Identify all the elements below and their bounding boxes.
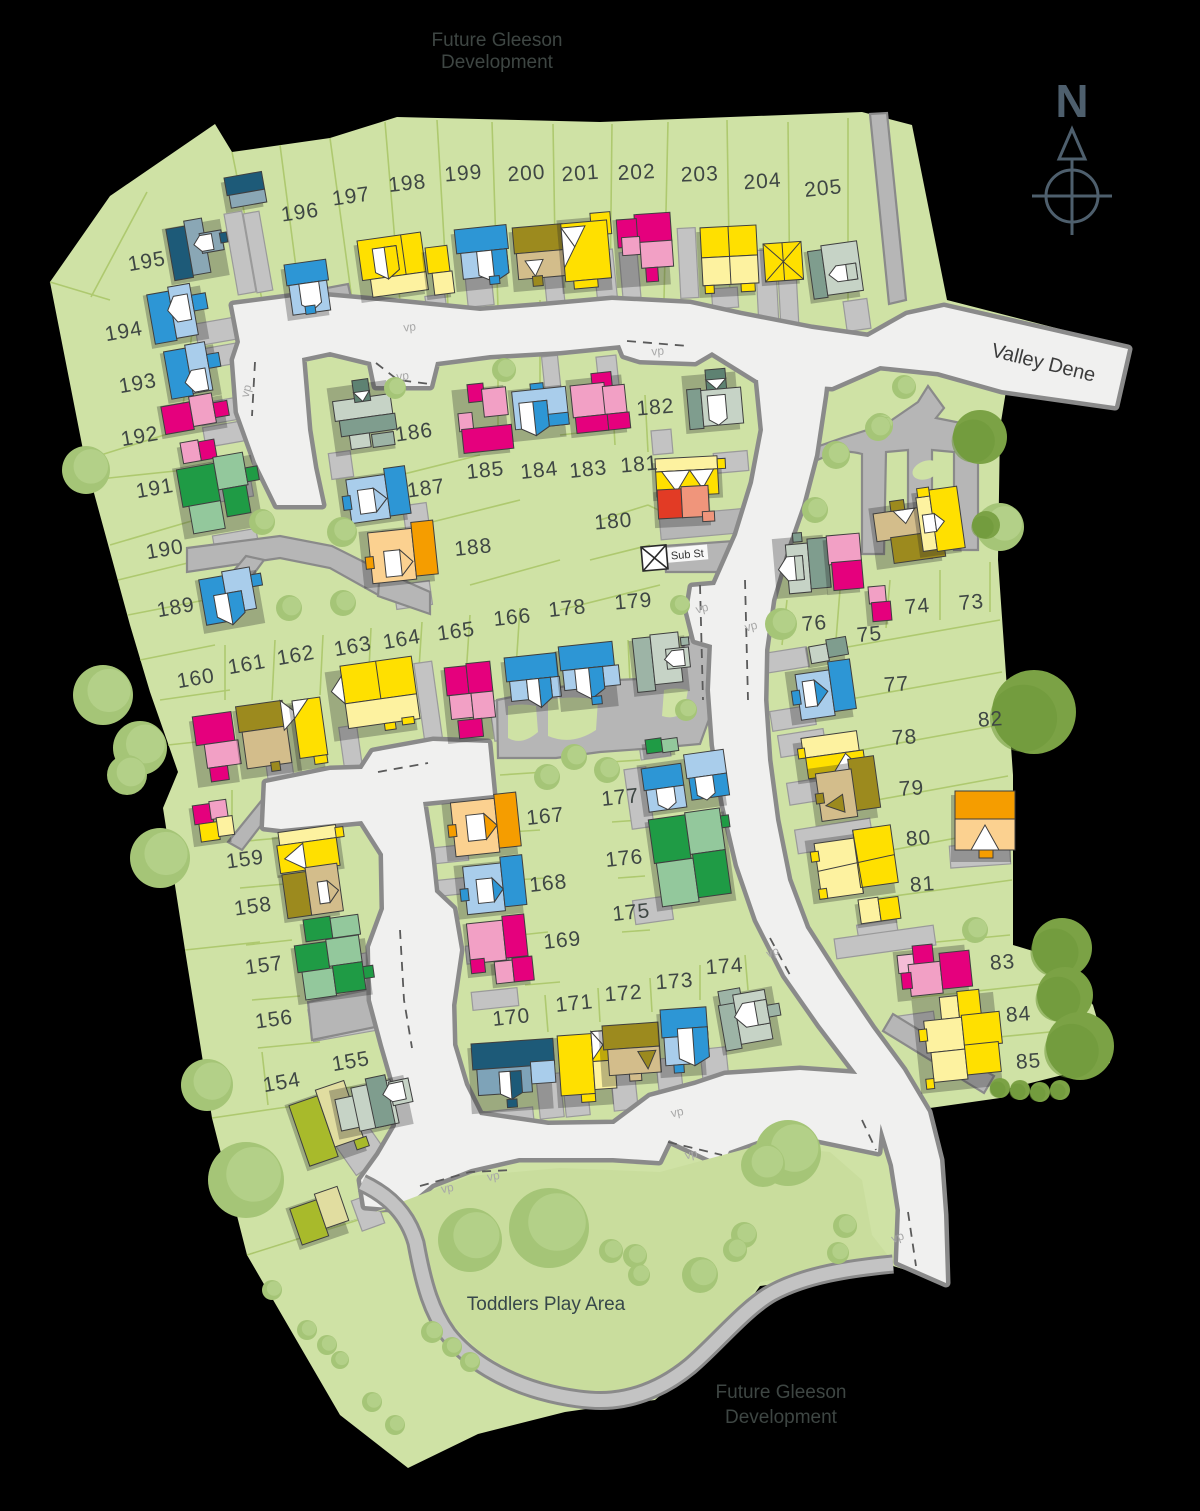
- svg-text:173: 173: [655, 969, 695, 995]
- svg-text:77: 77: [883, 672, 910, 697]
- svg-text:Development: Development: [725, 1407, 838, 1428]
- svg-text:199: 199: [443, 160, 483, 186]
- svg-text:Development: Development: [441, 52, 554, 73]
- svg-text:201: 201: [561, 161, 601, 187]
- svg-text:167: 167: [525, 803, 565, 830]
- svg-text:177: 177: [600, 784, 640, 811]
- svg-text:171: 171: [554, 990, 594, 1017]
- svg-text:76: 76: [801, 611, 828, 636]
- svg-text:85: 85: [1015, 1049, 1042, 1074]
- svg-text:84: 84: [1005, 1002, 1032, 1027]
- svg-text:170: 170: [491, 1004, 531, 1031]
- svg-text:74: 74: [904, 594, 931, 619]
- svg-text:Future Gleeson: Future Gleeson: [432, 30, 563, 51]
- svg-text:178: 178: [547, 595, 587, 622]
- svg-text:200: 200: [507, 161, 547, 187]
- svg-text:182: 182: [635, 394, 675, 420]
- svg-text:78: 78: [891, 725, 918, 750]
- svg-text:181: 181: [619, 451, 659, 477]
- svg-text:184: 184: [519, 457, 559, 484]
- svg-text:79: 79: [898, 776, 925, 801]
- svg-text:176: 176: [604, 845, 644, 872]
- svg-text:N: N: [1055, 75, 1088, 127]
- svg-text:83: 83: [989, 950, 1016, 975]
- svg-text:vp: vp: [651, 344, 665, 359]
- svg-text:80: 80: [905, 826, 932, 851]
- svg-text:183: 183: [568, 456, 608, 483]
- svg-text:Future Gleeson: Future Gleeson: [716, 1382, 847, 1403]
- svg-text:204: 204: [743, 169, 783, 195]
- svg-text:168: 168: [528, 870, 568, 897]
- svg-text:Toddlers Play Area: Toddlers Play Area: [467, 1294, 626, 1315]
- svg-text:172: 172: [604, 981, 644, 1007]
- svg-text:166: 166: [492, 604, 532, 631]
- svg-text:81: 81: [909, 872, 936, 897]
- svg-text:169: 169: [542, 927, 582, 954]
- svg-text:185: 185: [465, 457, 505, 484]
- svg-text:82: 82: [977, 707, 1004, 732]
- svg-text:202: 202: [617, 160, 656, 185]
- svg-text:203: 203: [680, 162, 719, 186]
- svg-text:205: 205: [803, 175, 843, 202]
- svg-text:174: 174: [705, 954, 745, 980]
- svg-text:188: 188: [453, 534, 493, 561]
- svg-text:180: 180: [593, 508, 633, 534]
- svg-text:198: 198: [387, 170, 427, 197]
- svg-text:73: 73: [958, 590, 985, 615]
- svg-text:75: 75: [856, 622, 883, 647]
- svg-text:175: 175: [611, 899, 651, 926]
- svg-text:vp: vp: [403, 319, 417, 334]
- svg-text:179: 179: [613, 588, 653, 614]
